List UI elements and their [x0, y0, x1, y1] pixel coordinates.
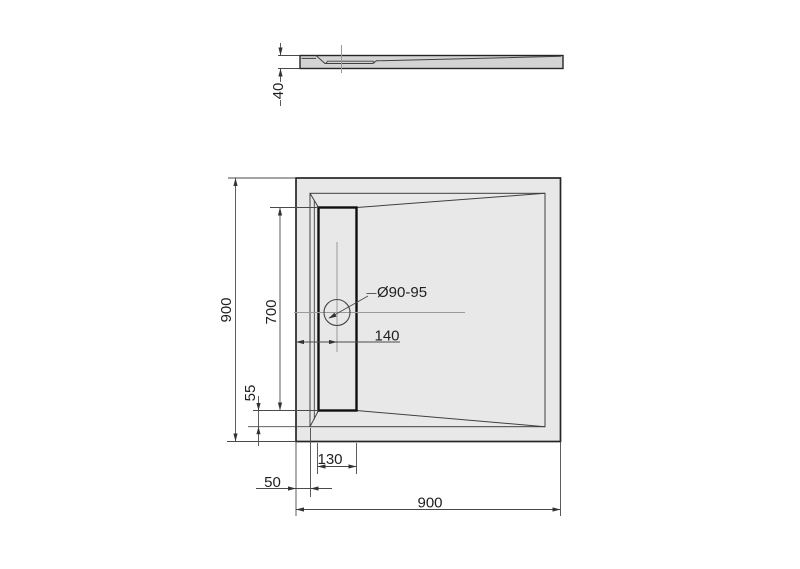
dim-channel-width-label: 130 — [317, 451, 342, 468]
dim-channel-bottom-offset-label: 55 — [242, 385, 259, 402]
arrowhead — [278, 69, 282, 77]
arrowhead — [233, 434, 237, 442]
arrowhead — [288, 486, 296, 490]
drawing-canvas: 40 Ø90-95 — [0, 0, 800, 569]
dim-overall-width-label: 900 — [417, 495, 442, 512]
arrowhead — [349, 464, 357, 468]
plan-view: Ø90-95 900 700 55 — [218, 178, 561, 516]
tray-outer-outline — [296, 178, 561, 442]
dim-channel-width-130: 130 — [317, 443, 356, 474]
arrowhead — [296, 507, 304, 511]
arrowhead — [278, 48, 282, 56]
dim-drain-offset-label: 140 — [374, 328, 399, 345]
arrowhead — [553, 507, 561, 511]
drain-diameter-label: Ø90-95 — [377, 284, 427, 301]
arrowhead — [278, 208, 282, 216]
arrowhead — [233, 178, 237, 186]
arrowhead — [256, 403, 260, 411]
dim-overall-height-label: 900 — [218, 297, 235, 322]
arrowhead — [256, 427, 260, 435]
dim-channel-length-label: 700 — [263, 299, 280, 324]
arrowhead — [311, 486, 319, 490]
dim-thickness-label: 40 — [270, 83, 287, 100]
technical-drawing: 40 Ø90-95 — [0, 0, 800, 569]
arrowhead — [278, 403, 282, 411]
side-view: 40 — [270, 43, 563, 106]
dim-rim-width-label: 50 — [264, 474, 281, 491]
dim-thickness-40: 40 — [270, 43, 300, 106]
